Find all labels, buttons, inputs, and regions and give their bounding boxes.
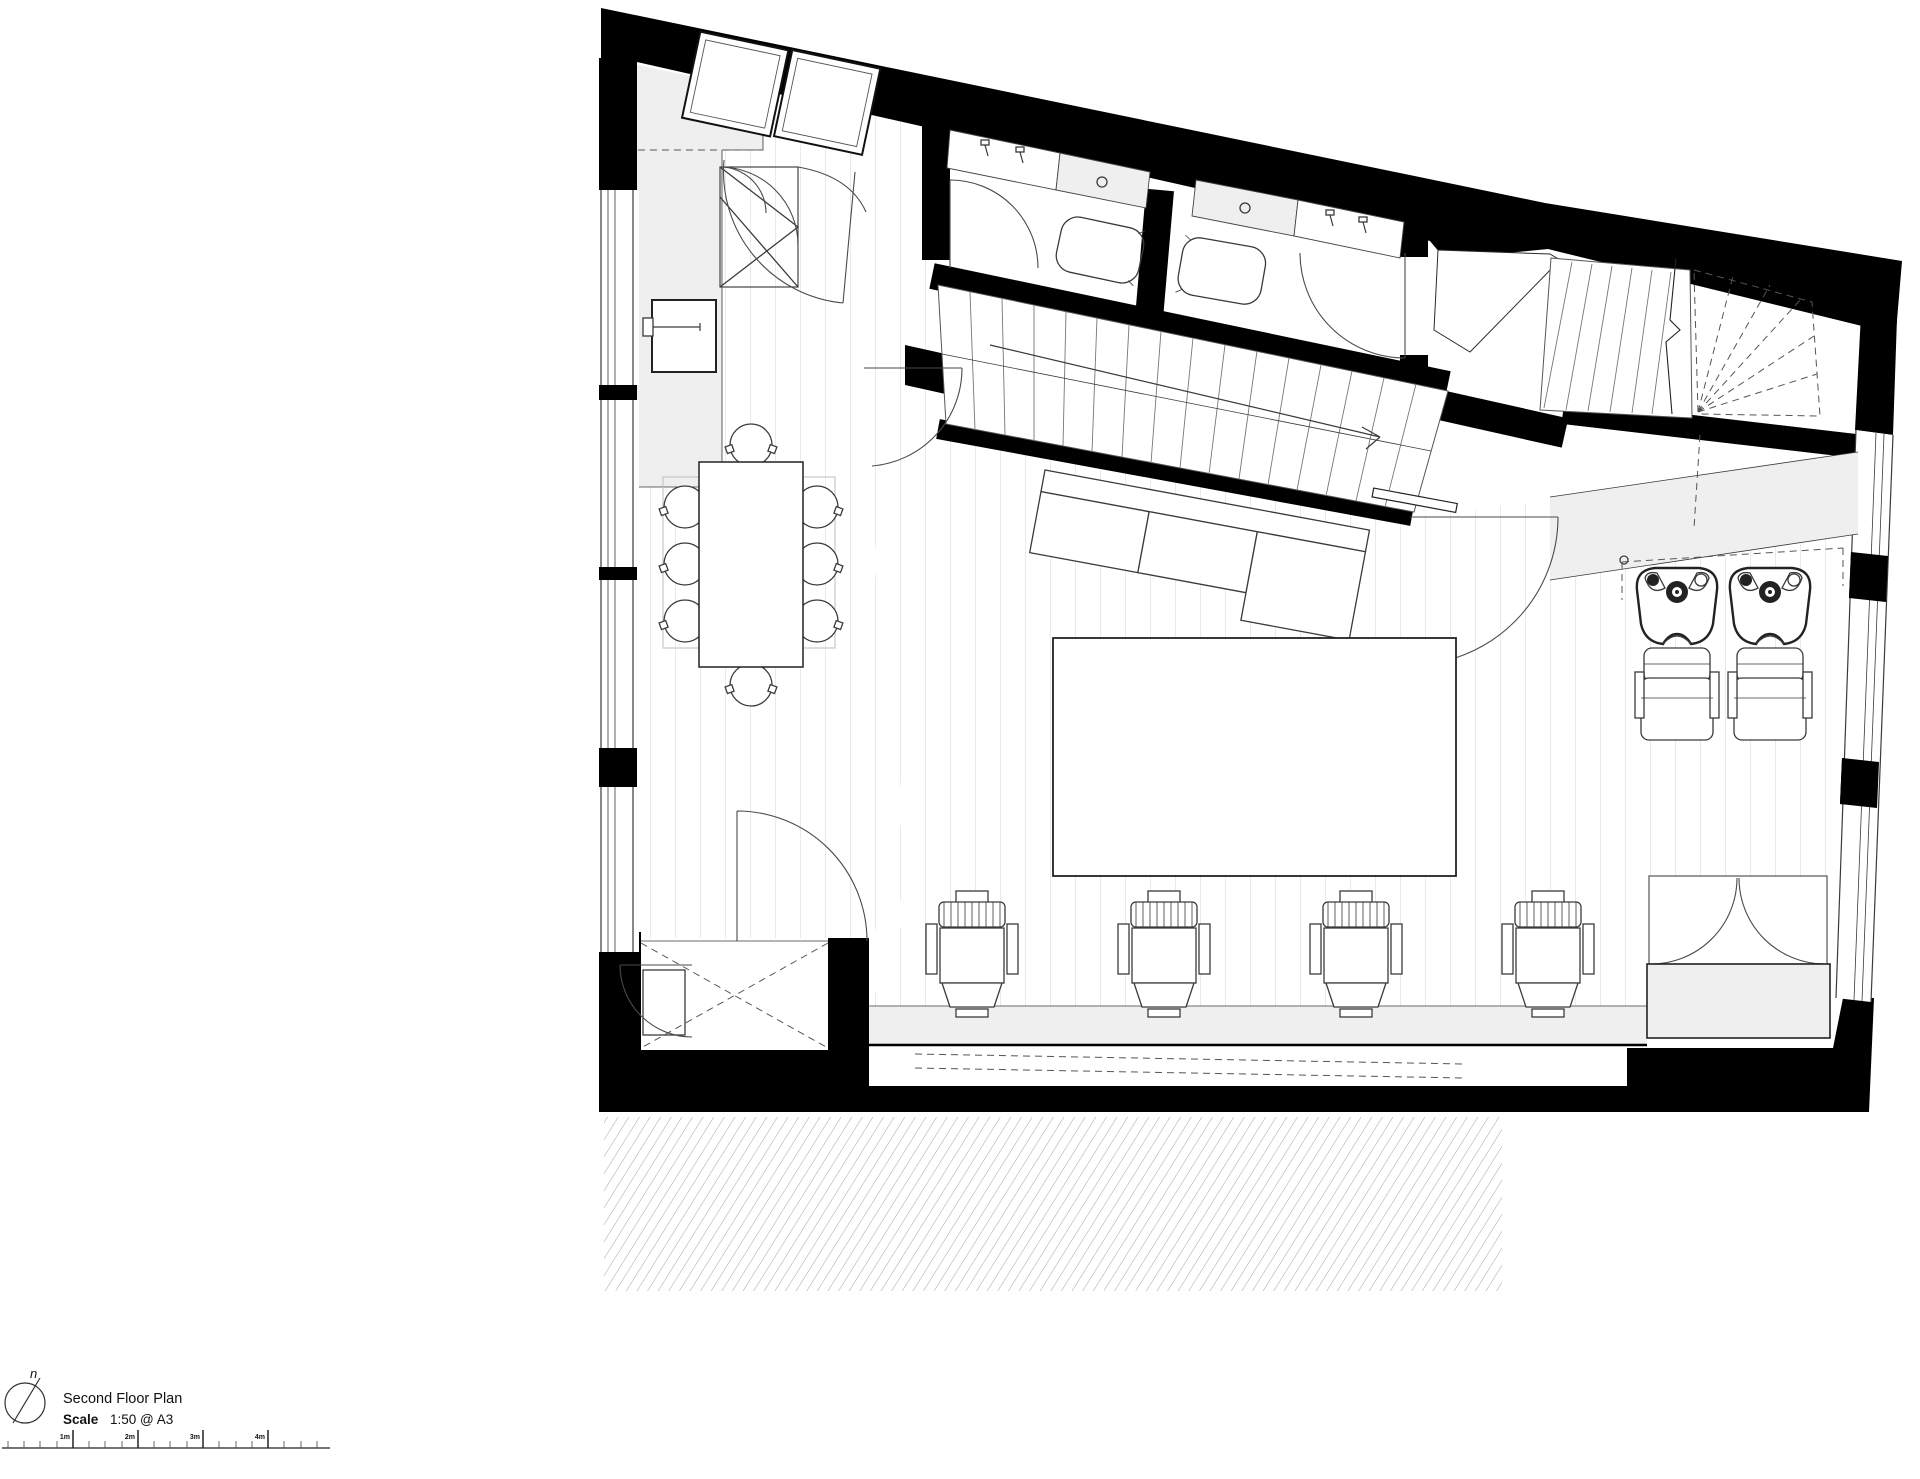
left-wall-segment — [599, 565, 637, 582]
facade-wall — [869, 1086, 1630, 1112]
exterior-notch — [1434, 250, 1560, 352]
drawing-sheet: n Second Floor Plan Scale 1:50 @ A3 1m 2… — [0, 0, 1920, 1479]
winder-south-wall — [1563, 412, 1856, 446]
scale-tick-label: 3m — [190, 1434, 200, 1441]
scale-value: 1:50 @ A3 — [110, 1412, 173, 1427]
plan-title: Second Floor Plan — [63, 1391, 182, 1407]
wall-pier — [828, 938, 869, 1112]
kitchen-sink — [643, 300, 716, 372]
north-label: n — [30, 1366, 37, 1381]
rooflight — [774, 50, 880, 155]
scale-bar: 1m 2m 3m 4m — [2, 1430, 330, 1448]
bathroom-2-right-wall — [1398, 183, 1428, 257]
bathroom-divider-wall — [1148, 190, 1160, 330]
entry-recess — [620, 941, 828, 1050]
right-wall-upper — [1855, 314, 1897, 435]
scale-tick-label: 1m — [60, 1434, 70, 1441]
bottom-wall — [641, 1050, 830, 1112]
rooflight — [682, 32, 788, 137]
scale-tick-label: 4m — [255, 1434, 265, 1441]
bottom-left-wall — [599, 932, 641, 1112]
title-block: n Second Floor Plan Scale 1:50 @ A3 — [5, 1366, 182, 1427]
canopy-dashed-lines — [915, 1054, 1465, 1078]
dining-table — [699, 462, 803, 667]
adjacent-roof-hatch — [604, 1117, 1502, 1291]
cabinet-base — [1647, 964, 1830, 1038]
left-wall-segment — [599, 383, 637, 402]
bathroom-1-left-wall — [922, 126, 950, 260]
left-wall-segment — [599, 58, 637, 192]
island-counter — [1053, 638, 1456, 876]
scale-label: Scale — [63, 1412, 99, 1427]
left-wall-segment — [599, 746, 637, 789]
floor-plan-canvas: n Second Floor Plan Scale 1:50 @ A3 1m 2… — [0, 0, 1920, 1479]
corner-cabinet — [1647, 876, 1830, 1038]
scale-tick-label: 2m — [125, 1434, 135, 1441]
